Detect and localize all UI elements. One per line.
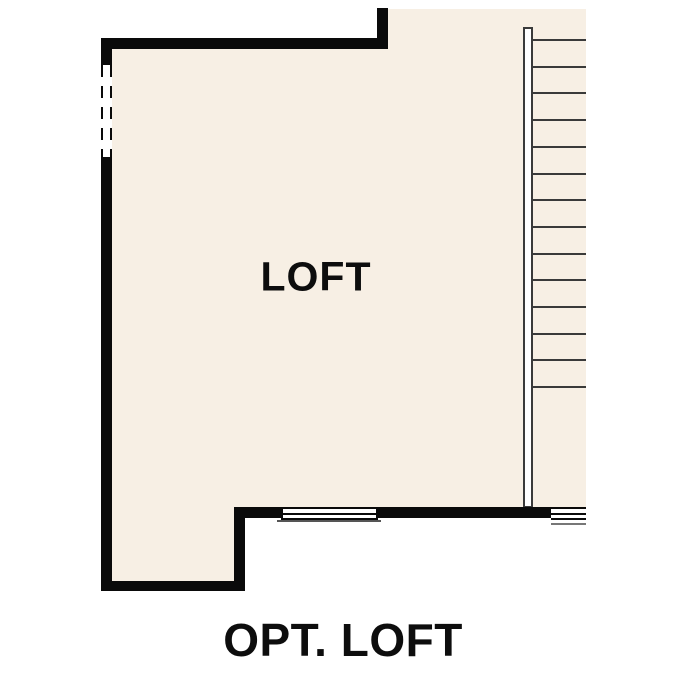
wall-top-step (377, 8, 388, 49)
window-right-mullion (551, 513, 586, 515)
stair-tread (533, 253, 586, 255)
window-left-mullion (283, 513, 376, 515)
wall-bottom-left (101, 581, 245, 591)
window-right (551, 507, 586, 520)
stair-tread (533, 66, 586, 68)
window-right-sill (551, 523, 586, 525)
stair-tread (533, 92, 586, 94)
wall-left-upper (101, 38, 112, 65)
stair-railing (523, 27, 533, 508)
window-left (281, 507, 378, 520)
wall-left-lower (101, 157, 112, 591)
stair-tread (533, 333, 586, 335)
wall-step-horizontal (234, 507, 281, 518)
stair-tread (533, 359, 586, 361)
dashed-wall-opening (101, 65, 112, 157)
wall-top (101, 38, 388, 49)
stair-tread (533, 173, 586, 175)
room-label: LOFT (260, 254, 371, 301)
stair-tread (533, 386, 586, 388)
stair-tread (533, 119, 586, 121)
plan-caption: OPT. LOFT (223, 613, 463, 667)
stair-tread (533, 146, 586, 148)
floor-plan: LOFT OPT. LOFT (0, 0, 687, 687)
stair-tread (533, 226, 586, 228)
stair-tread (533, 39, 586, 41)
stair-tread (533, 279, 586, 281)
wall-bottom-main (378, 507, 551, 518)
window-left-sill (277, 520, 381, 522)
stair-tread (533, 306, 586, 308)
stair-tread (533, 199, 586, 201)
wall-step-vertical (234, 507, 245, 591)
